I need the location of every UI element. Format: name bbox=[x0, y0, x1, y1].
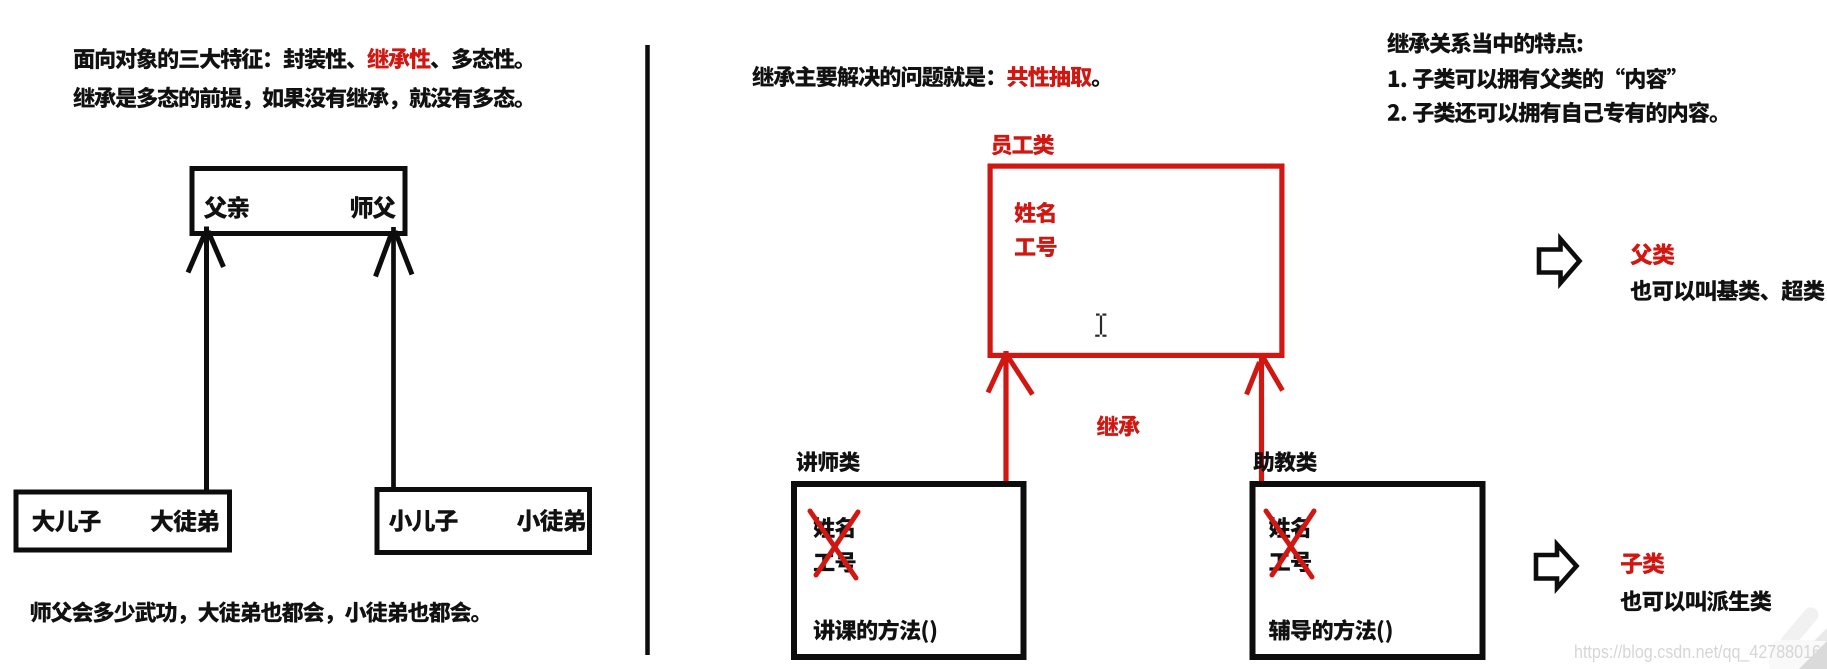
svg-text:https://blog.csdn.net/qq_42788: https://blog.csdn.net/qq_42788016 bbox=[1574, 641, 1821, 663]
